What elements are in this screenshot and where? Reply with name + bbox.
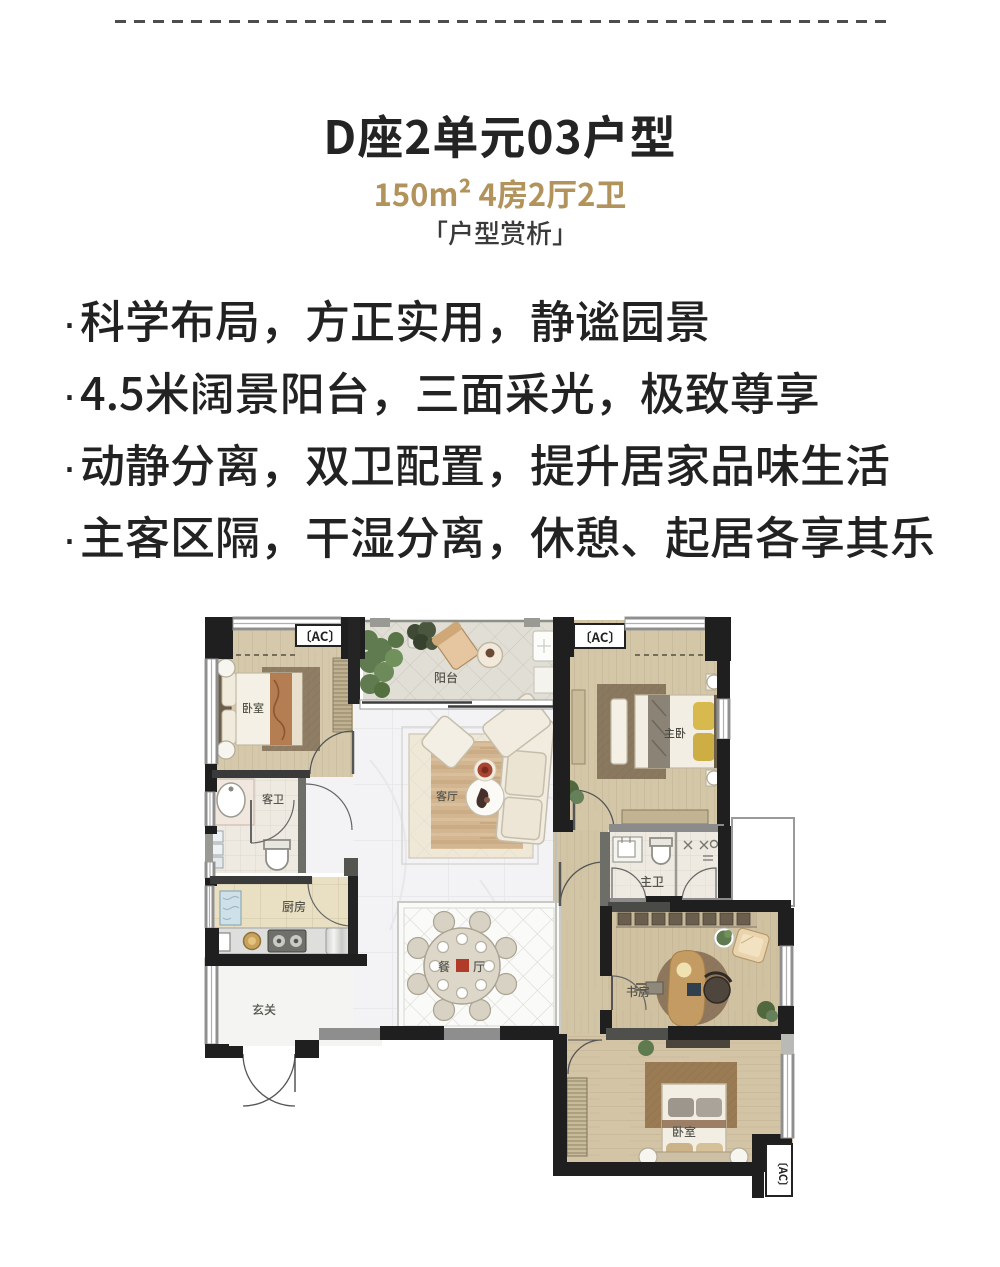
svg-text:书房: 书房 — [626, 983, 650, 1000]
svg-text:〔AC〕: 〔AC〕 — [579, 627, 622, 646]
svg-text:客厅: 客厅 — [436, 788, 458, 804]
svg-text:厅: 厅 — [473, 958, 485, 975]
svg-text:主卧: 主卧 — [664, 725, 686, 741]
svg-text:餐: 餐 — [438, 958, 450, 975]
svg-text:客卫: 客卫 — [262, 791, 284, 807]
svg-text:玄关: 玄关 — [252, 1001, 276, 1018]
svg-text:主卫: 主卫 — [640, 873, 664, 890]
svg-text:阳台: 阳台 — [434, 669, 458, 686]
svg-text:〔AC〕: 〔AC〕 — [775, 1156, 791, 1192]
svg-text:卧室: 卧室 — [672, 1123, 696, 1140]
svg-text:〔AC〕: 〔AC〕 — [299, 626, 342, 645]
svg-text:卧室: 卧室 — [242, 700, 264, 716]
svg-text:厨房: 厨房 — [282, 898, 306, 915]
